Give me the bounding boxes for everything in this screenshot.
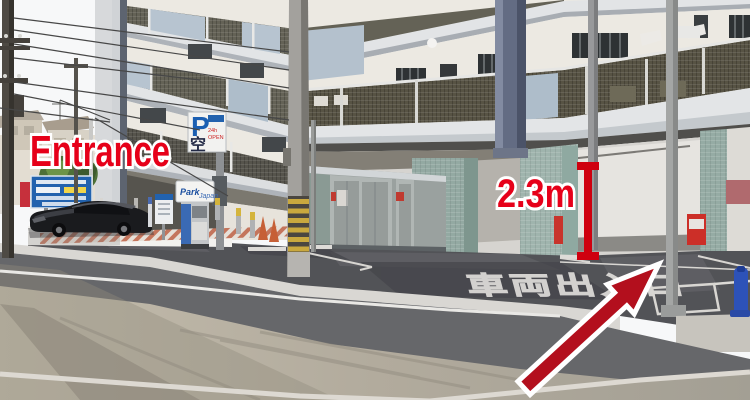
svg-text:OPEN: OPEN <box>208 135 224 141</box>
svg-text:Park: Park <box>180 187 201 197</box>
svg-text:24h: 24h <box>208 128 217 134</box>
svg-text:2.3m: 2.3m <box>497 172 575 216</box>
svg-text:空: 空 <box>190 135 206 154</box>
svg-text:車両出入口: 車両出入口 <box>463 272 690 300</box>
svg-text:Entrance: Entrance <box>30 127 170 176</box>
